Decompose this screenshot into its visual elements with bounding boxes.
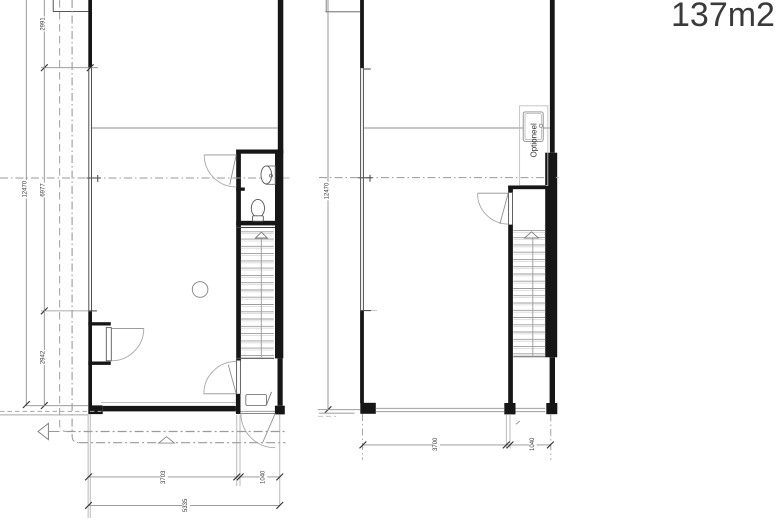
svg-text:3700: 3700 — [433, 437, 439, 451]
svg-text:2942: 2942 — [41, 350, 47, 364]
svg-text:12470: 12470 — [324, 182, 330, 199]
svg-text:5335: 5335 — [183, 498, 189, 512]
svg-text:3703: 3703 — [161, 470, 167, 484]
svg-text:Optioneel: Optioneel — [529, 123, 538, 157]
svg-text:1040: 1040 — [260, 470, 266, 484]
svg-text:137m2: 137m2 — [671, 0, 775, 34]
svg-text:2991: 2991 — [41, 17, 47, 31]
svg-text:6977: 6977 — [41, 183, 47, 197]
svg-text:1040: 1040 — [530, 437, 536, 451]
svg-text:12470: 12470 — [23, 180, 29, 197]
